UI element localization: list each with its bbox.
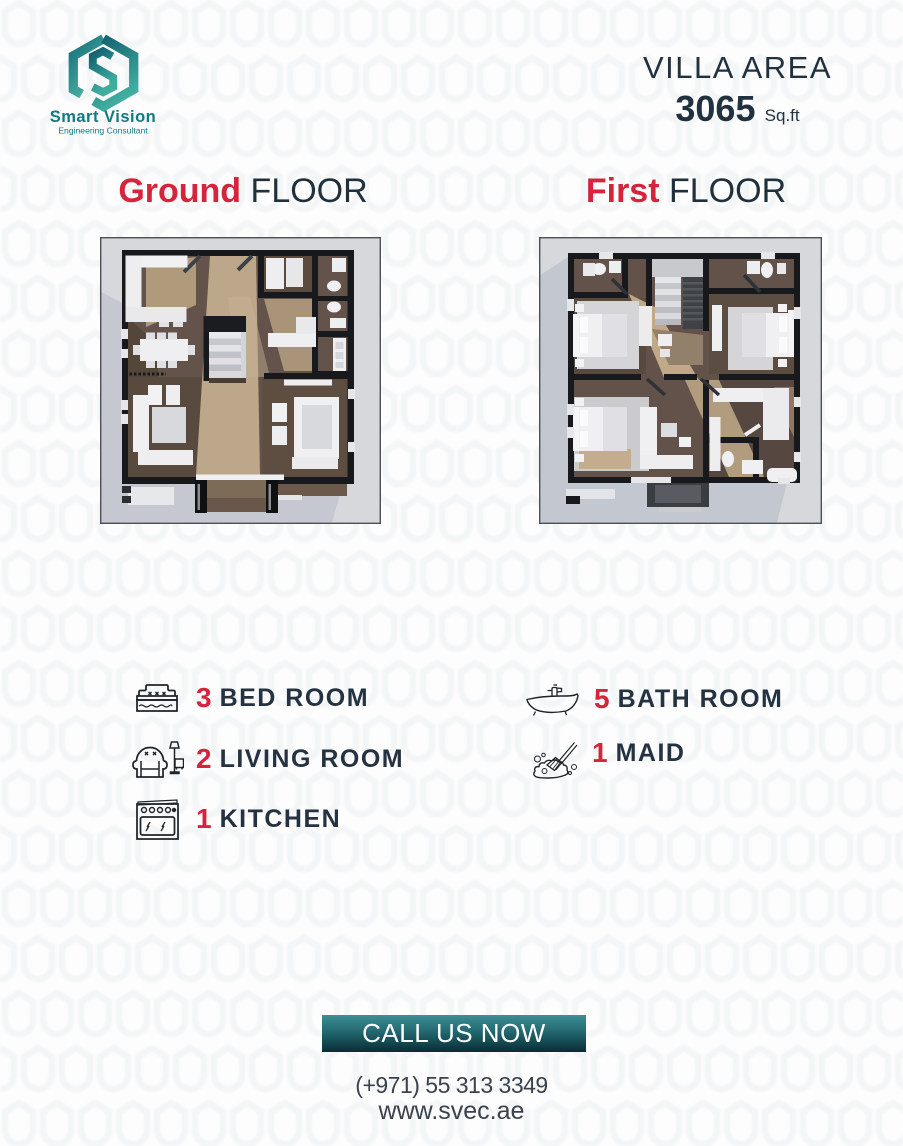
svg-text:Smart Vision: Smart Vision (50, 108, 157, 126)
svg-text:Engineering Consultant: Engineering Consultant (58, 126, 148, 136)
